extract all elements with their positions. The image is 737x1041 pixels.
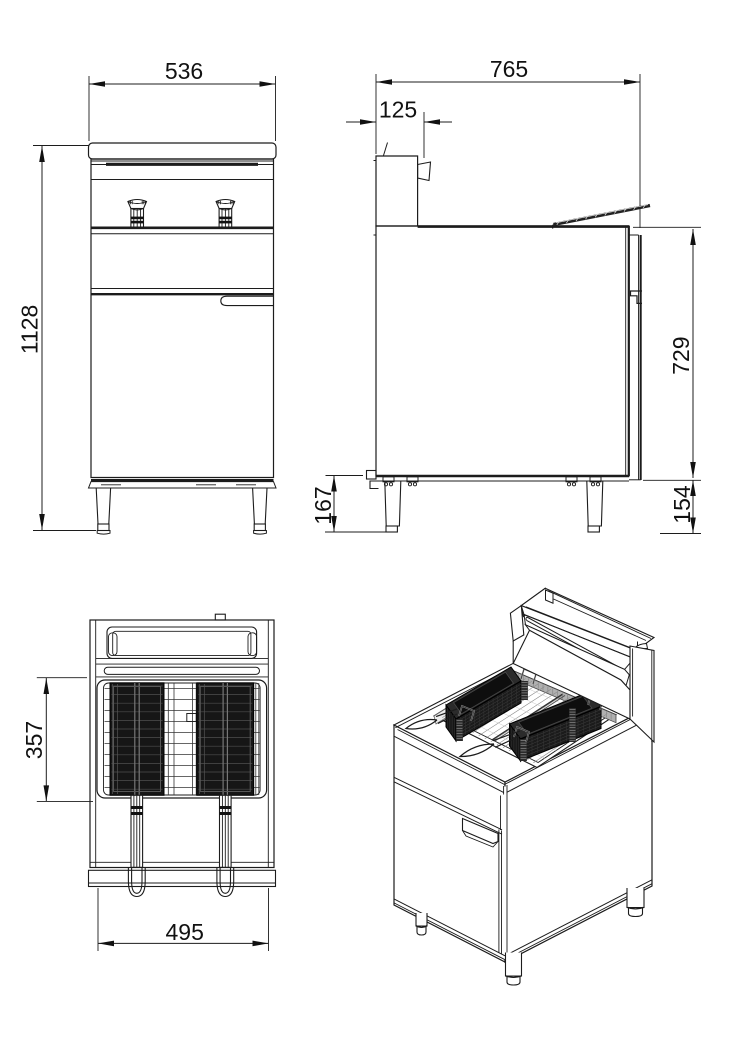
svg-text:125: 125 <box>379 97 417 123</box>
svg-text:536: 536 <box>165 58 203 84</box>
svg-text:167: 167 <box>310 486 336 524</box>
svg-text:495: 495 <box>166 919 204 945</box>
svg-text:357: 357 <box>21 721 47 759</box>
svg-text:729: 729 <box>668 336 694 374</box>
svg-text:765: 765 <box>490 56 528 82</box>
svg-text:1128: 1128 <box>17 305 43 354</box>
svg-text:154: 154 <box>669 485 695 524</box>
